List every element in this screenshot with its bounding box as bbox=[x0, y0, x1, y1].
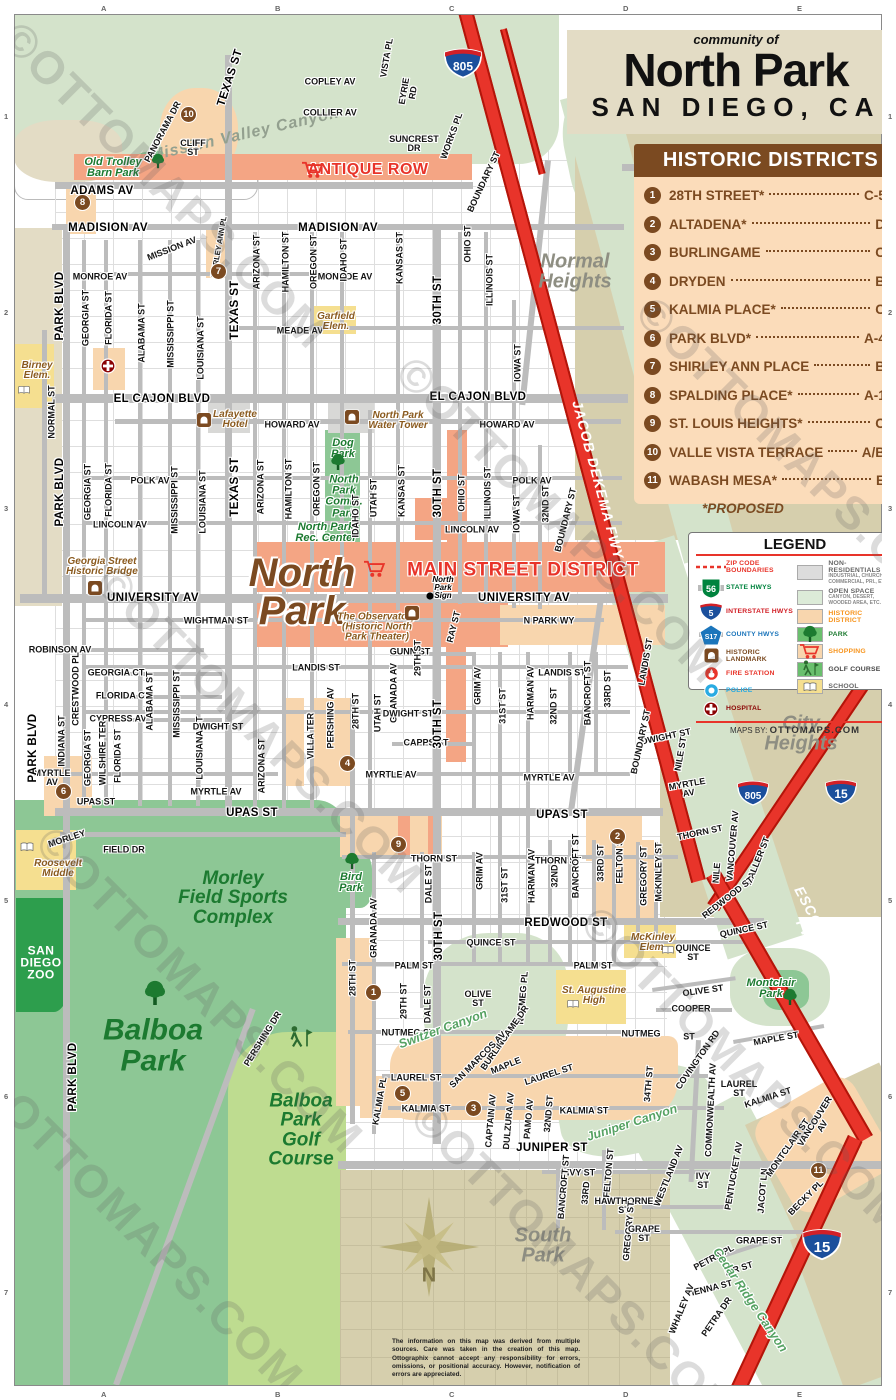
map-label: 33RD ST bbox=[596, 844, 605, 881]
historic-district-row: 2ALTADENA*D-5 bbox=[644, 216, 882, 233]
historic-district-row: 128TH STREET*C-5/6 bbox=[644, 187, 882, 204]
svg-text:15: 15 bbox=[834, 787, 848, 801]
district-name: ALTADENA* bbox=[669, 217, 747, 232]
map-label: Balboa Park bbox=[103, 1015, 203, 1076]
map-label: ALABAMA ST bbox=[145, 671, 154, 730]
cart-icon bbox=[363, 560, 387, 579]
legend-item: HISTORIC DISTRICT bbox=[797, 609, 882, 624]
map-label: 30TH ST bbox=[433, 276, 445, 325]
district-number-badge: 11 bbox=[644, 472, 661, 489]
legend-item: GOLF COURSE bbox=[797, 662, 882, 677]
map-label: IOWA ST bbox=[513, 344, 522, 382]
map-label: 29TH ST bbox=[399, 983, 408, 1019]
map-label: Bird Park bbox=[339, 872, 363, 894]
leader-dots bbox=[808, 421, 871, 423]
map-label: JUNIPER ST bbox=[516, 1143, 588, 1155]
leader-dots bbox=[752, 222, 871, 224]
grid-row-label: 3 bbox=[888, 504, 892, 513]
grid-row-label: 1 bbox=[4, 112, 8, 121]
district-number-badge: 10 bbox=[644, 444, 661, 461]
zip-icon bbox=[696, 564, 726, 570]
map-label: HARMAN AV bbox=[526, 666, 535, 720]
map-label: MYRTLE AV bbox=[524, 773, 575, 782]
map-label: GUNN ST bbox=[390, 647, 431, 656]
map-label: PARK BLVD bbox=[28, 714, 40, 783]
district-marker: 3 bbox=[465, 1100, 482, 1117]
map-label: UNIVERSITY AV bbox=[478, 593, 570, 605]
map-label: ANTIQUE ROW bbox=[307, 162, 428, 178]
legend-credit-brand: OTTOMAPS.COM bbox=[770, 725, 860, 736]
grid-column-label: B bbox=[275, 4, 280, 13]
district-number-badge: 8 bbox=[644, 387, 661, 404]
map-label: North Park Rec. Center bbox=[295, 522, 356, 544]
grid-row-label: 1 bbox=[888, 112, 892, 121]
legend-item: 56STATE HWYS bbox=[696, 577, 797, 599]
legend-label-group: PARK bbox=[828, 631, 848, 638]
district-name: BURLINGAME bbox=[669, 245, 761, 260]
map-label: GEORGIA ST bbox=[81, 290, 90, 346]
map-label: GRIM AV bbox=[473, 667, 482, 705]
map-label: UPAS ST bbox=[77, 797, 115, 806]
map-label: 28TH ST bbox=[348, 960, 357, 996]
map-label: LANDIS ST bbox=[292, 663, 340, 672]
map-label: OHIO ST bbox=[463, 225, 472, 262]
map-label: KALMIA ST bbox=[560, 1106, 609, 1115]
color-swatch bbox=[797, 590, 823, 605]
cart-icon bbox=[301, 161, 325, 180]
legend-label-group: HISTORIC DISTRICT bbox=[828, 610, 882, 624]
map-label: SUNCREST DR bbox=[389, 135, 439, 153]
map-label: Birney Elem. bbox=[21, 361, 52, 381]
legend-label: STATE HWYS bbox=[726, 584, 772, 591]
legend-credit-prefix: MAPS BY: bbox=[730, 726, 767, 735]
color-swatch bbox=[797, 609, 823, 624]
map-label: UPAS ST bbox=[536, 810, 588, 822]
district-grid-ref: A/B-1 bbox=[862, 445, 882, 460]
map-label: FLORIDA ST bbox=[104, 291, 113, 345]
map-label: LINCOLN AV bbox=[445, 525, 499, 534]
map-label: LINCOLN AV bbox=[93, 520, 147, 529]
map-label: PARK BLVD bbox=[55, 272, 67, 341]
legend-label: INTERSTATE HWYS bbox=[726, 608, 793, 615]
dot-icon bbox=[426, 592, 434, 600]
map-label: OREGON ST bbox=[309, 235, 318, 289]
map-label: North Park Sign bbox=[432, 576, 453, 600]
map-label: NUTMEG bbox=[622, 1029, 661, 1038]
legend-label-group: SHOPPING bbox=[828, 648, 865, 655]
map-label: OREGON ST bbox=[312, 462, 321, 516]
district-marker: 10 bbox=[180, 106, 197, 123]
map-label: 31ST ST bbox=[498, 688, 507, 724]
map-label: FLORIDA ST bbox=[104, 463, 113, 517]
legend-label: POLICE bbox=[726, 687, 753, 694]
map-label: GRAPE ST bbox=[736, 1236, 782, 1245]
book-icon bbox=[18, 386, 31, 395]
legend-sublabel: CANYON, DESERT, WOODED AREA, ETC. bbox=[828, 595, 882, 607]
district-grid-ref: C-6 bbox=[875, 245, 882, 260]
district-name: 28TH STREET* bbox=[669, 188, 764, 203]
legend-label: SCHOOL bbox=[828, 683, 858, 690]
interstate-805-shield-icon: 805 bbox=[443, 45, 484, 79]
map-label: McKINLEY ST bbox=[654, 842, 663, 901]
grid-row-label: 6 bbox=[888, 1092, 892, 1101]
legend-label: HISTORIC LANDMARK bbox=[726, 649, 797, 663]
grid-row-label: 7 bbox=[4, 1288, 8, 1297]
map-label: HAMILTON ST bbox=[284, 459, 293, 520]
map-label: Lafayette Hotel bbox=[213, 410, 257, 430]
legend-label-group: OPEN SPACECANYON, DESERT, WOODED AREA, E… bbox=[828, 588, 882, 607]
map-label: GREGORY ST bbox=[639, 846, 648, 906]
map-label: BANCROFT ST bbox=[583, 661, 592, 726]
map-label: OLIVE ST bbox=[464, 990, 491, 1008]
map-label: MISSISSIPPI ST bbox=[166, 300, 175, 368]
hospital-icon bbox=[696, 701, 726, 717]
map-label: PARK BLVD bbox=[68, 1043, 80, 1112]
map-label: HOWARD AV bbox=[265, 420, 320, 429]
legend-label: COUNTY HWYS bbox=[726, 631, 779, 638]
district-grid-ref: A-4/5 bbox=[864, 331, 882, 346]
map-label: WILSHIRE TER bbox=[98, 721, 107, 786]
district-grid-ref: C-6 bbox=[875, 302, 882, 317]
map-label: FIELD DR bbox=[103, 845, 145, 854]
map-label: GRAPE ST bbox=[628, 1225, 660, 1243]
district-number-badge: 2 bbox=[644, 216, 661, 233]
map-label: QUINCE ST bbox=[675, 944, 710, 962]
district-grid-ref: B-2 bbox=[875, 359, 882, 374]
district-marker: 2 bbox=[609, 828, 626, 845]
map-label: 32ND ST bbox=[549, 687, 558, 724]
map-label: IVY ST bbox=[696, 1172, 711, 1190]
map-sheet: community of North Park SAN DIEGO, CA HI… bbox=[0, 0, 896, 1400]
map-label: 31ST ST bbox=[500, 867, 509, 903]
svg-text:805: 805 bbox=[453, 59, 473, 73]
tree-icon bbox=[782, 988, 798, 1006]
legend-item: HOSPITAL bbox=[696, 701, 797, 717]
map-label: MADISION AV bbox=[298, 223, 378, 235]
district-marker: 4 bbox=[339, 755, 356, 772]
leader-dots bbox=[814, 364, 870, 366]
leader-dots bbox=[756, 336, 859, 338]
map-label: PERSHING AV bbox=[326, 687, 335, 748]
map-label: GRANADA AV bbox=[369, 898, 378, 958]
cart-icon bbox=[797, 644, 823, 659]
grid-row-label: 3 bbox=[4, 504, 8, 513]
map-label: MONROE AV bbox=[73, 272, 128, 281]
map-label: KANSAS ST bbox=[395, 232, 404, 284]
district-number-badge: 4 bbox=[644, 273, 661, 290]
svg-text:15: 15 bbox=[814, 1239, 831, 1256]
map-label: GEORGIA ST bbox=[83, 730, 92, 786]
district-name: DRYDEN bbox=[669, 274, 726, 289]
legend-item: OPEN SPACECANYON, DESERT, WOODED AREA, E… bbox=[797, 588, 882, 607]
map-label: ARIZONA ST bbox=[256, 460, 265, 515]
map-label: MISSISSIPPI ST bbox=[170, 466, 179, 534]
district-number-badge: 1 bbox=[644, 187, 661, 204]
district-grid-ref: B-4 bbox=[875, 274, 882, 289]
tree-icon bbox=[797, 627, 823, 642]
map-label: TEXAS ST bbox=[230, 457, 242, 516]
map-label: EL CAJON BLVD bbox=[114, 394, 211, 406]
district-grid-ref: C-5 bbox=[875, 416, 882, 431]
district-number-badge: 9 bbox=[644, 415, 661, 432]
legend-label-group: GOLF COURSE bbox=[828, 666, 880, 673]
book-icon bbox=[797, 679, 823, 694]
legend-sublabel: INDUSTRIAL, CHURCH, COMMERCIAL, PRI., ET… bbox=[828, 574, 882, 586]
book-icon bbox=[567, 1000, 580, 1009]
map-label: MYRTLE AV bbox=[366, 770, 417, 779]
inter-icon: 5 bbox=[696, 601, 726, 621]
legend-item: SCHOOL bbox=[797, 679, 882, 694]
golfer-icon bbox=[797, 662, 823, 677]
legend-label: HOSPITAL bbox=[726, 705, 761, 712]
map-label: HARMAN AV bbox=[527, 849, 536, 903]
svg-text:5: 5 bbox=[709, 608, 714, 618]
grid-column-label: C bbox=[449, 4, 454, 13]
map-label: PALM ST bbox=[395, 961, 434, 970]
map-label: CLIFF ST bbox=[180, 139, 206, 157]
map-label: INDIANA ST bbox=[57, 715, 66, 766]
map-label: ALABAMA ST bbox=[137, 303, 146, 362]
map-label: DWIGHT ST bbox=[383, 709, 434, 718]
leader-dots bbox=[798, 393, 859, 395]
map-label: CRESTWOOD PL bbox=[71, 652, 80, 726]
district-marker: 8 bbox=[74, 194, 91, 211]
map-label: COLLIER AV bbox=[303, 108, 357, 117]
legend-label-group: SCHOOL bbox=[828, 683, 858, 690]
map-label: LAUREL ST bbox=[391, 1073, 441, 1082]
historic-district-row: 4DRYDENB-4 bbox=[644, 273, 882, 290]
legend-item: POLICE bbox=[696, 683, 797, 698]
district-marker: 1 bbox=[365, 984, 382, 1001]
interstate-15-shield-icon: 15 bbox=[824, 777, 858, 805]
grid-column-label: D bbox=[623, 1390, 628, 1399]
legend-item: SHOPPING bbox=[797, 644, 882, 659]
state-icon: 56 bbox=[696, 577, 726, 599]
leader-dots bbox=[769, 193, 859, 195]
district-number-badge: 7 bbox=[644, 358, 661, 375]
landmark-icon bbox=[345, 410, 360, 425]
map-label: N PARK WY bbox=[524, 616, 575, 625]
legend-label: PARK bbox=[828, 631, 848, 638]
compass-north-label: N bbox=[422, 1264, 436, 1287]
district-name: WABASH MESA* bbox=[669, 473, 777, 488]
map-label: ILLINOIS ST bbox=[485, 254, 494, 306]
map-label: GEORGIA ST bbox=[83, 464, 92, 520]
leader-dots bbox=[781, 307, 870, 309]
svg-text:56: 56 bbox=[706, 584, 716, 594]
map-label: UPAS ST bbox=[226, 808, 278, 820]
map-label: 30TH ST bbox=[434, 912, 446, 961]
grid-row-label: 5 bbox=[888, 896, 892, 905]
map-label: Morley Field Sports Complex bbox=[178, 869, 288, 927]
legend-label: ZIP CODE BOUNDARIES bbox=[726, 560, 797, 574]
grid-row-label: 4 bbox=[888, 700, 892, 709]
district-grid-ref: A-1/2 bbox=[864, 388, 882, 403]
map-label: IDAHO ST bbox=[351, 494, 360, 537]
grid-column-label: A bbox=[101, 1390, 106, 1399]
historic-district-row: 3BURLINGAMEC-6 bbox=[644, 244, 882, 261]
map-label: ROBINSON AV bbox=[29, 645, 92, 654]
title-name: North Park bbox=[567, 47, 882, 93]
interstate-805-shield-icon: 805 bbox=[736, 778, 770, 806]
title-block: community of North Park SAN DIEGO, CA bbox=[567, 30, 882, 134]
disclaimer-text: The information on this map was derived … bbox=[392, 1338, 580, 1380]
legend-item: 5INTERSTATE HWYS bbox=[696, 601, 797, 621]
map-label: IVY ST bbox=[567, 1168, 595, 1177]
leader-dots bbox=[731, 279, 871, 281]
map-label: 33RD ST bbox=[603, 670, 612, 707]
district-grid-ref: C-5/6 bbox=[864, 188, 882, 203]
map-label: LOUISIANA ST bbox=[196, 316, 205, 379]
interstate-15-shield-icon: 15 bbox=[801, 1226, 844, 1261]
landmark-icon bbox=[197, 413, 212, 428]
grid-column-label: D bbox=[623, 4, 628, 13]
legend-label: HISTORIC DISTRICT bbox=[828, 610, 882, 624]
compass-rose: N bbox=[369, 1187, 489, 1307]
legend-item: ZIP CODE BOUNDARIES bbox=[696, 560, 797, 574]
district-grid-ref: E-6 bbox=[876, 473, 882, 488]
map-label: PARK BLVD bbox=[55, 458, 67, 527]
leader-dots bbox=[766, 250, 871, 252]
map-label: QUINCE ST bbox=[466, 938, 515, 947]
map-label: IDAHO ST bbox=[339, 238, 348, 281]
grid-row-label: 2 bbox=[4, 308, 8, 317]
map-label: LANDIS ST bbox=[538, 668, 586, 677]
grid-column-label: E bbox=[797, 1390, 802, 1399]
svg-text:805: 805 bbox=[745, 791, 762, 802]
grid-column-label: E bbox=[797, 4, 802, 13]
map-label: SAN DIEGO ZOO bbox=[20, 945, 61, 982]
map-label: GEORGIA CT bbox=[88, 668, 145, 677]
map-label: LOUISIANA ST bbox=[198, 470, 207, 533]
grid-column-label: B bbox=[275, 1390, 280, 1399]
grid-column-label: A bbox=[101, 4, 106, 13]
legend-right-column: NON-RESIDENTIALSINDUSTRIAL, CHURCH, COMM… bbox=[797, 556, 882, 719]
map-label: 30TH ST bbox=[433, 469, 445, 518]
grid-row-label: 4 bbox=[4, 700, 8, 709]
map-label: 30TH ST bbox=[433, 700, 445, 749]
grid-row-label: 7 bbox=[888, 1288, 892, 1297]
map-label: OHIO ST bbox=[457, 474, 466, 511]
grid-row-label: 5 bbox=[4, 896, 8, 905]
district-marker: 5 bbox=[394, 1085, 411, 1102]
map-label: NILE bbox=[712, 862, 723, 883]
grid-row-label: 6 bbox=[4, 1092, 8, 1101]
grid-column-label: C bbox=[449, 1390, 454, 1399]
map-label: MADISION AV bbox=[68, 223, 148, 235]
district-marker: 6 bbox=[55, 783, 72, 800]
map-label: UTAH ST bbox=[369, 479, 378, 517]
map-label: GRIM AV bbox=[475, 852, 484, 890]
map-label: NORMAL ST bbox=[47, 385, 56, 438]
legend-label: FIRE STATION bbox=[726, 670, 775, 677]
district-grid-ref: D-5 bbox=[875, 217, 882, 232]
legend-label: GOLF COURSE bbox=[828, 666, 880, 673]
map-label: COPLEY AV bbox=[305, 77, 356, 86]
tree-icon bbox=[330, 453, 346, 471]
map-label: 32ND bbox=[550, 864, 559, 887]
map-label: WIGHTMAN ST bbox=[184, 616, 249, 625]
map-label: MYRTLE AV bbox=[191, 787, 242, 796]
hospital-icon bbox=[100, 358, 116, 374]
map-label: FLORIDA ST bbox=[113, 729, 122, 783]
color-swatch bbox=[797, 565, 823, 580]
map-label: POLK AV bbox=[130, 476, 169, 485]
map-label: UTAH ST bbox=[373, 694, 382, 732]
map-label: 28TH ST bbox=[351, 693, 360, 729]
map-label: BANCROFT ST bbox=[571, 834, 580, 899]
map-label: 29TH ST bbox=[413, 640, 422, 676]
map-label: FLORIDA CT bbox=[96, 691, 150, 700]
grid-row-label: 2 bbox=[888, 308, 892, 317]
title-city: SAN DIEGO, CA bbox=[567, 93, 882, 122]
legend-item: PARK bbox=[797, 627, 882, 642]
map-label: Normal Heights bbox=[538, 252, 611, 293]
historic-districts-header: HISTORIC DISTRICTS bbox=[634, 144, 882, 177]
map-label: DALE ST bbox=[423, 985, 432, 1024]
legend-credit: MAPS BY: OTTOMAPS.COM bbox=[696, 721, 882, 736]
map-label: KANSAS ST bbox=[397, 465, 406, 517]
legend-label: SHOPPING bbox=[828, 648, 865, 655]
leader-dots bbox=[828, 450, 856, 452]
district-number-badge: 3 bbox=[644, 244, 661, 261]
landmark-icon bbox=[405, 606, 420, 621]
